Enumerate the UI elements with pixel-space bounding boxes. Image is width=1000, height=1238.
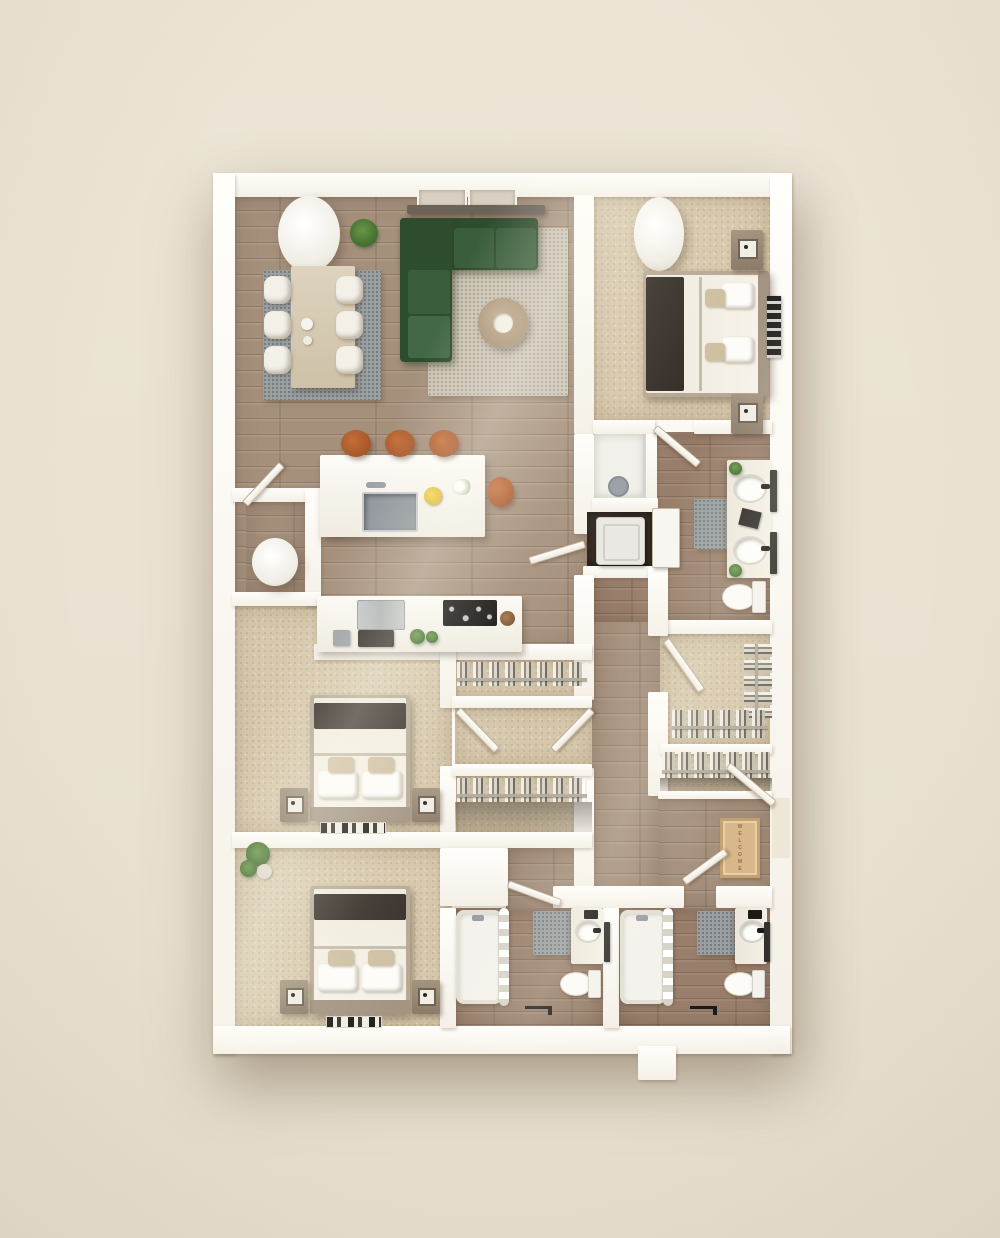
potted-plant	[240, 860, 257, 877]
toilet	[722, 584, 756, 610]
accent-pillow	[368, 757, 394, 773]
closet-rod	[755, 644, 758, 718]
wall-utility-right	[305, 488, 321, 606]
accent-pillow	[705, 289, 725, 307]
bed-blanket	[646, 277, 684, 391]
wall-bedroom3-hall-chunk	[440, 848, 508, 906]
bed-fold	[314, 946, 406, 949]
bed-blanket	[314, 894, 406, 920]
bed-pillow	[722, 283, 754, 309]
bar-stool	[487, 477, 514, 507]
vanity-plant	[729, 564, 742, 577]
wall-baths-top-mid	[553, 886, 684, 908]
washer-dryer	[596, 517, 645, 565]
accent-pillow	[328, 950, 354, 966]
toilet-tank	[752, 581, 766, 613]
closet-rod	[672, 726, 768, 729]
welcome-mat: WELCOME	[720, 818, 760, 878]
coffee-table	[478, 298, 528, 348]
towel-bar	[548, 1006, 552, 1015]
floor-lamp-cylinder	[278, 196, 340, 272]
towel-bar	[713, 1006, 717, 1015]
vanity-accessories	[584, 910, 598, 919]
floor-plan-stage: WELCOME	[0, 0, 1000, 1238]
headboard	[310, 807, 410, 821]
laundry-door-panel	[652, 508, 680, 568]
bed-2	[310, 695, 410, 821]
wall-laundry-bottom	[583, 566, 657, 578]
bed-pillow	[362, 964, 402, 992]
table-decor	[301, 318, 313, 330]
hanging-clothes	[662, 752, 770, 778]
wall-shower-right	[645, 434, 657, 504]
counter-plant	[426, 631, 438, 643]
island-faucet	[366, 482, 386, 488]
headboard	[310, 1000, 410, 1014]
nightstand	[412, 788, 440, 822]
shower-drain	[608, 476, 629, 497]
island-sink	[362, 492, 418, 532]
bedside-runner	[320, 822, 386, 834]
vanity-mirror	[770, 470, 777, 512]
refrigerator	[357, 600, 405, 630]
hanging-clothes	[672, 710, 768, 738]
closet-rod	[662, 770, 770, 773]
accent-pillow	[368, 950, 394, 966]
toilet-tank	[752, 970, 765, 998]
sofa-cushion	[408, 270, 450, 314]
nightstand	[280, 788, 308, 822]
wall-bedroom2-bedroom3	[232, 832, 592, 848]
dining-chair	[264, 276, 291, 304]
cooktop	[443, 600, 497, 626]
table-decor	[493, 313, 513, 333]
sink-faucet	[593, 928, 601, 933]
nightstand	[731, 230, 763, 270]
shower-curtain	[499, 908, 509, 1006]
hanging-clothes	[457, 662, 587, 686]
bed-1	[643, 271, 769, 397]
wall-closet1-vestibule	[452, 696, 592, 708]
bar-stool	[429, 430, 459, 457]
wall-bath-closet-divider	[655, 620, 772, 634]
lemon-bowl	[424, 487, 442, 505]
bedside-runner	[326, 1016, 382, 1028]
bed-fold	[314, 753, 406, 756]
sink-faucet	[761, 546, 770, 551]
bathroom-mirror	[764, 922, 770, 962]
dining-chair	[264, 311, 291, 339]
table-decor	[303, 336, 312, 345]
bathtub	[620, 910, 666, 1004]
vanity-accessories	[748, 910, 762, 919]
tub-faucet	[636, 915, 648, 921]
bedroom1-cylinder-lamp	[634, 197, 684, 271]
coffee-maker	[333, 630, 350, 646]
flower-vase	[452, 479, 472, 495]
bed-pillow	[362, 771, 402, 799]
bar-stool	[341, 430, 371, 457]
wall-walkin-left-upper	[648, 566, 668, 636]
sofa-cushion	[408, 316, 450, 358]
wall-art	[767, 296, 781, 358]
wall-bedroom1-bath-left	[593, 420, 655, 434]
wall-vestibule-closet2	[452, 764, 592, 776]
closet-rod	[457, 678, 587, 681]
bar-stool	[385, 430, 415, 457]
bed-3	[310, 886, 410, 1014]
accent-pillow	[705, 343, 725, 361]
bed-fold	[699, 277, 702, 391]
water-heater	[252, 538, 298, 586]
front-door-recess	[772, 798, 790, 858]
accent-pillow	[328, 757, 354, 773]
wall-bedroom3-bath2	[440, 908, 456, 1028]
cooking-pot	[500, 611, 515, 626]
wall-utility-bottom	[232, 592, 321, 606]
dining-chair	[336, 276, 363, 304]
toilet-tank	[588, 970, 601, 998]
sofa-cushion	[496, 228, 536, 268]
outer-wall-bottom	[213, 1026, 790, 1054]
counter-plant	[410, 629, 425, 644]
shower-curtain	[663, 908, 673, 1006]
bath-mat	[697, 911, 737, 955]
bed-pillow	[318, 771, 358, 799]
dining-chair	[336, 346, 363, 374]
bed-blanket	[314, 703, 406, 729]
wall-shower-bottom	[592, 498, 658, 512]
outer-wall-left	[213, 173, 235, 1054]
bed-pillow	[722, 337, 754, 363]
wall-stub-bottom	[638, 1046, 676, 1080]
vanity-plant	[729, 462, 742, 475]
canister-set	[358, 630, 394, 647]
dining-chair	[264, 346, 291, 374]
sofa-cushion	[454, 228, 494, 268]
nightstand	[280, 980, 308, 1014]
nightstand	[731, 394, 763, 434]
bathroom-mirror	[604, 922, 610, 962]
bathtub	[456, 910, 502, 1004]
closet-rod	[457, 794, 587, 797]
welcome-mat-text: WELCOME	[737, 824, 743, 873]
wall-baths-top-right	[716, 886, 772, 908]
vanity-mirror	[770, 532, 777, 574]
potted-plant	[350, 219, 378, 247]
dining-chair	[336, 311, 363, 339]
bath-mat	[533, 911, 573, 955]
nightstand	[412, 980, 440, 1014]
hanging-clothes	[457, 778, 587, 802]
bed-pillow	[318, 964, 358, 992]
tub-faucet	[472, 915, 484, 921]
hanging-clothes	[744, 644, 772, 718]
sink-faucet	[761, 484, 770, 489]
console-table	[407, 205, 545, 214]
wall-living-bedroom1	[574, 195, 594, 434]
shower-glass	[643, 434, 646, 498]
plant-pot	[257, 864, 272, 879]
